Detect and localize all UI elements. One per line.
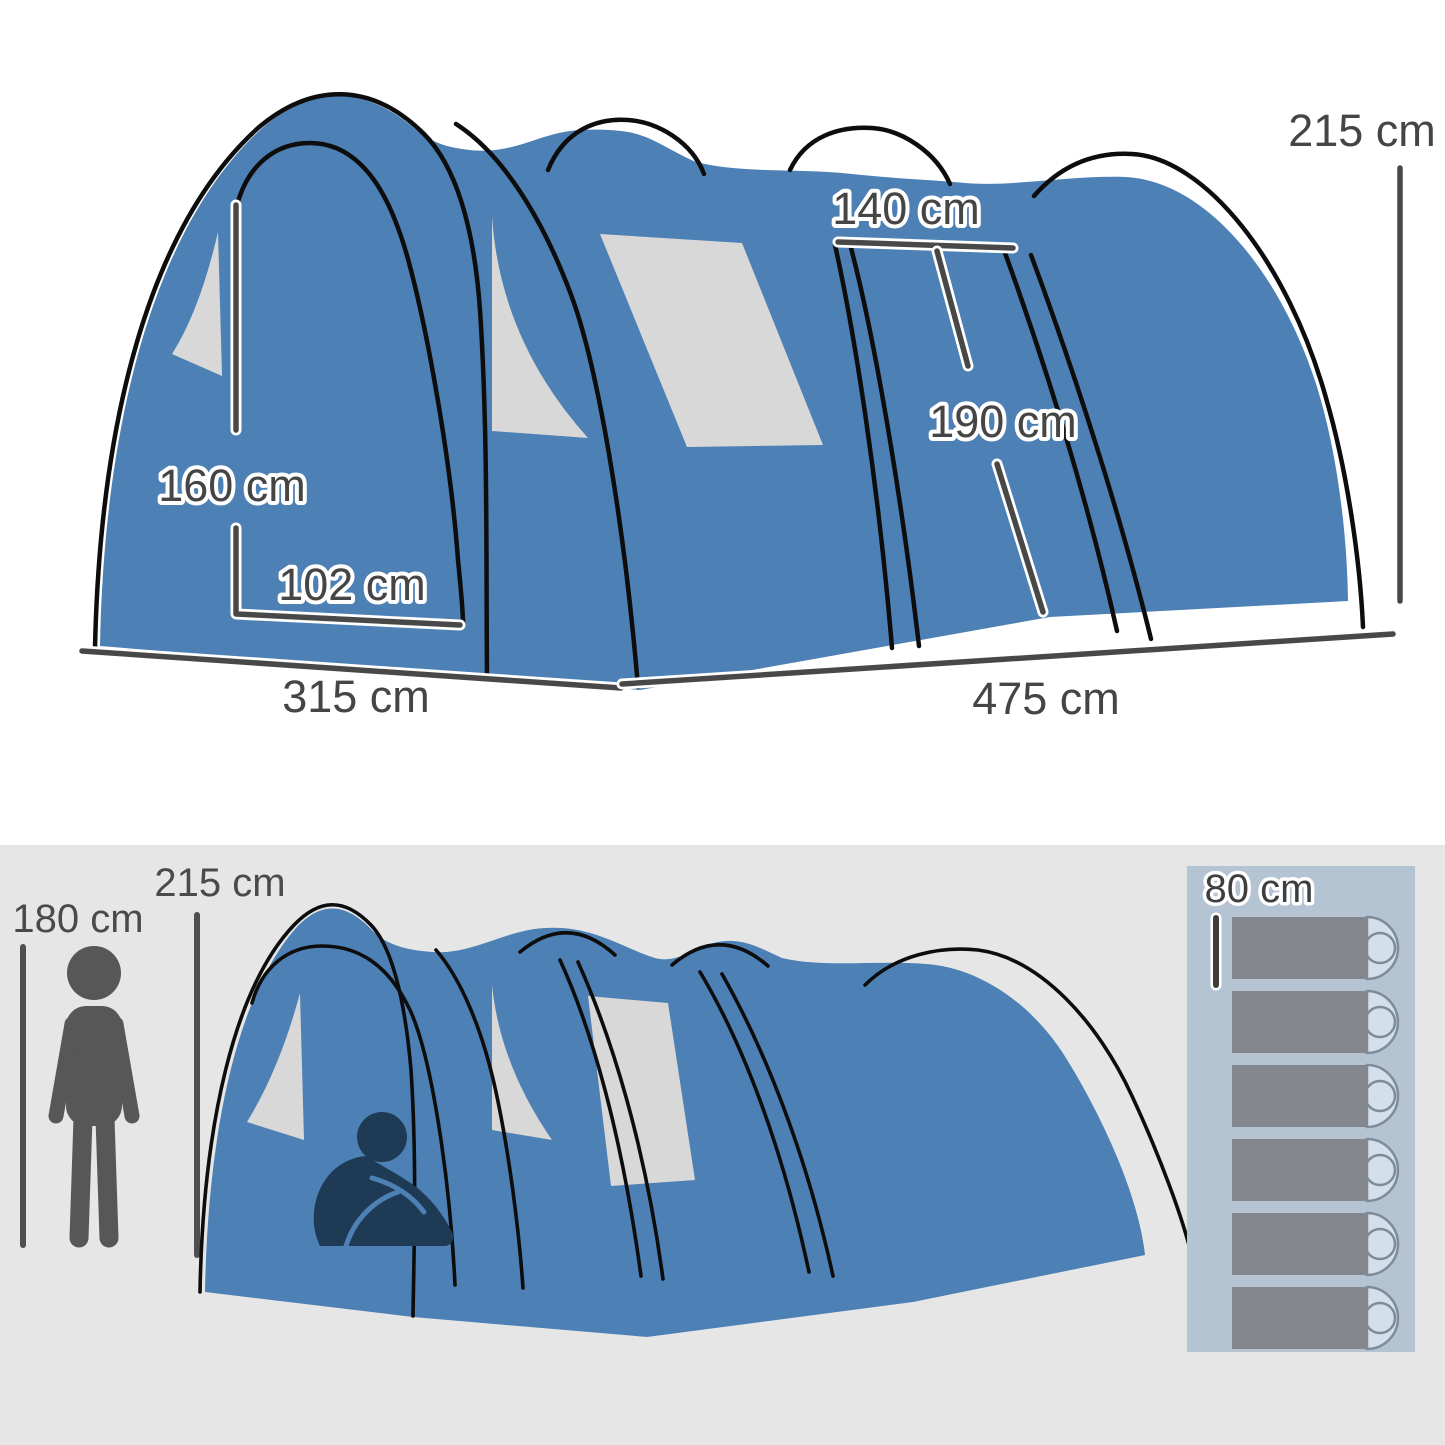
sleeping-bag [1232,1139,1398,1201]
sleeping-bag-body [1232,991,1367,1053]
person-height-label: 180 cm [12,897,143,941]
sleeping-bag-body [1232,1065,1367,1127]
human-figure-head [67,946,121,1000]
sleeping-bag [1232,1213,1398,1275]
sleeping-bag-body [1232,1139,1367,1201]
back-height-label: 215 cm [1288,105,1436,156]
door-width-label: 102 cm [278,559,426,610]
sleeping-bag-panel: 80 cm [1187,866,1415,1352]
inner-width-label: 140 cm [832,183,980,234]
bag-width-label: 80 cm [1205,867,1314,911]
diagram-svg: 215 cm 140 cm 190 cm 160 cm 102 cm 315 c… [0,0,1445,1445]
inner-height-label: 190 cm [929,396,1077,447]
sitting-person-head [357,1112,407,1162]
front-width-label: 315 cm [282,671,430,722]
tent-dimension-infographic: 215 cm 140 cm 190 cm 160 cm 102 cm 315 c… [0,0,1445,1445]
side-length-label: 475 cm [972,673,1120,724]
door-height-label: 160 cm [158,460,306,511]
sleeping-bag [1232,917,1398,979]
sleeping-bag-body [1232,1213,1367,1275]
sleeping-bag [1232,1287,1398,1349]
sleeping-bag-body [1232,917,1367,979]
sleeping-bag-body [1232,1287,1367,1349]
sleeping-bag [1232,991,1398,1053]
tent-height-label: 215 cm [154,861,285,905]
sleeping-bag [1232,1065,1398,1127]
